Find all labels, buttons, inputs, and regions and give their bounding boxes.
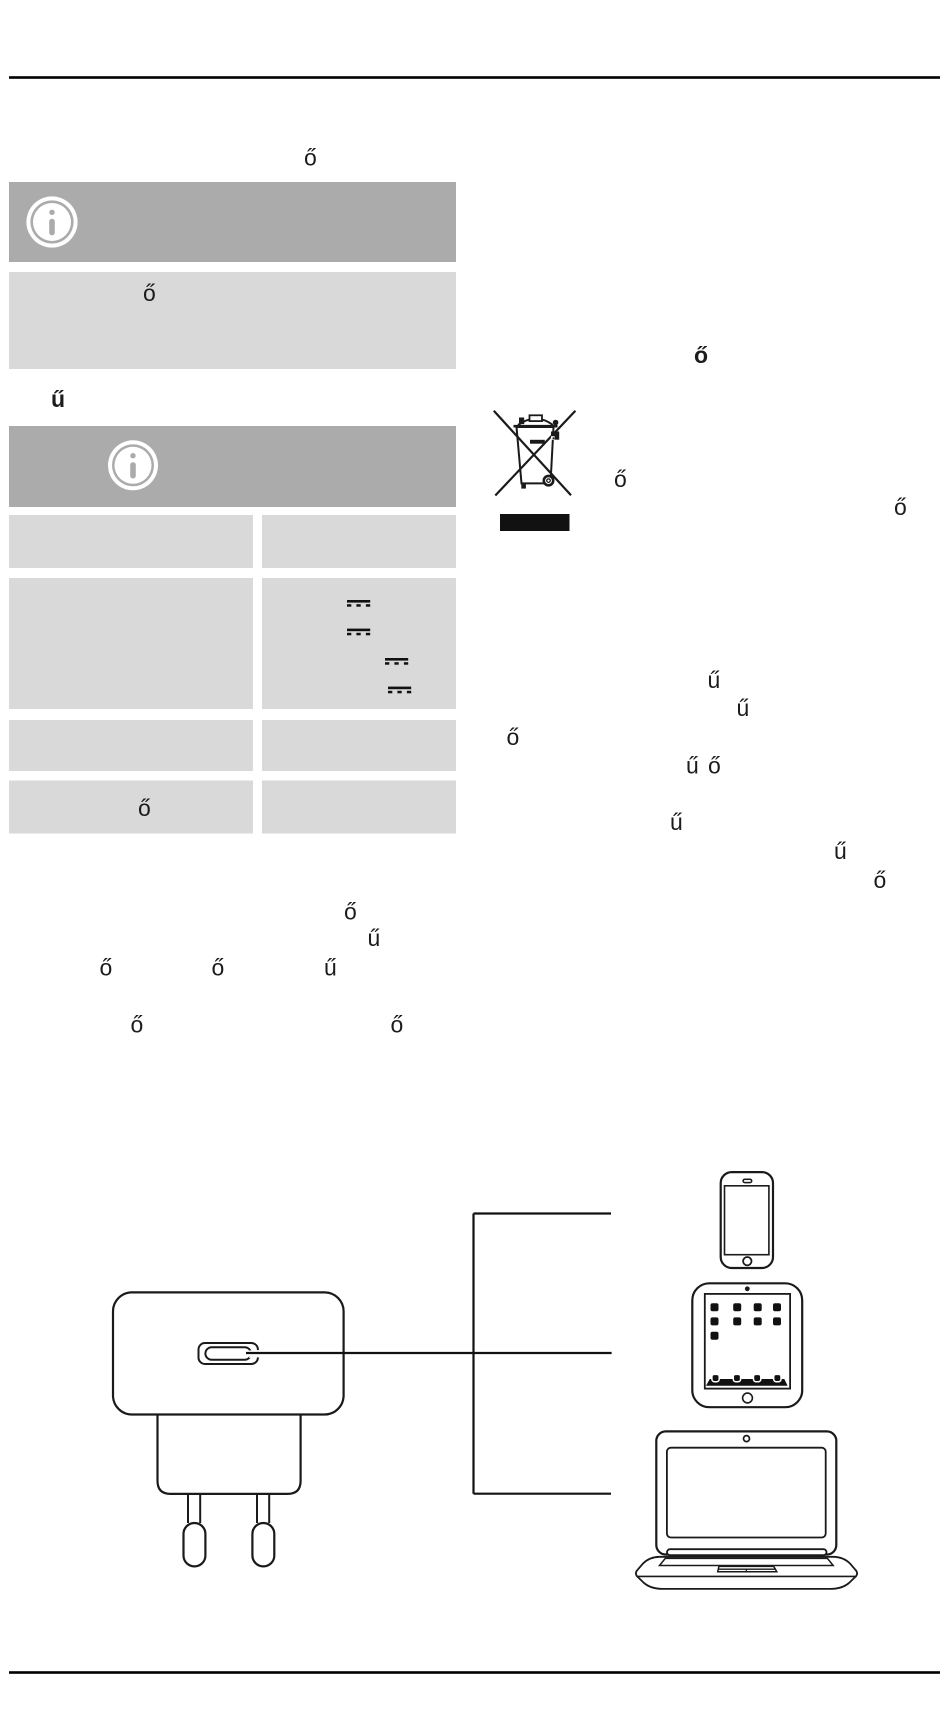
svg-text:ű: ű — [708, 667, 721, 693]
svg-text:ő: ő — [212, 955, 225, 981]
svg-text:ő: ő — [344, 899, 357, 925]
svg-text:ű: ű — [686, 753, 699, 779]
svg-text:ű: ű — [737, 695, 750, 721]
svg-text:ő: ő — [143, 280, 156, 306]
svg-text:ő: ő — [894, 494, 907, 520]
svg-text:ő: ő — [614, 466, 627, 492]
svg-text:ű: ű — [324, 955, 337, 981]
svg-text:ű: ű — [834, 838, 847, 864]
svg-text:ű: ű — [51, 386, 65, 412]
svg-text:ő: ő — [708, 753, 721, 779]
svg-text:ő: ő — [507, 724, 520, 750]
svg-text:ő: ő — [391, 1012, 404, 1038]
svg-text:ő: ő — [100, 955, 113, 981]
svg-text:ő: ő — [138, 795, 151, 821]
svg-text:ű: ű — [670, 809, 683, 835]
svg-text:ő: ő — [304, 145, 317, 171]
svg-text:ő: ő — [131, 1012, 144, 1038]
svg-text:ő: ő — [874, 867, 887, 893]
svg-text:ő: ő — [694, 342, 708, 368]
svg-text:ű: ű — [368, 925, 381, 951]
